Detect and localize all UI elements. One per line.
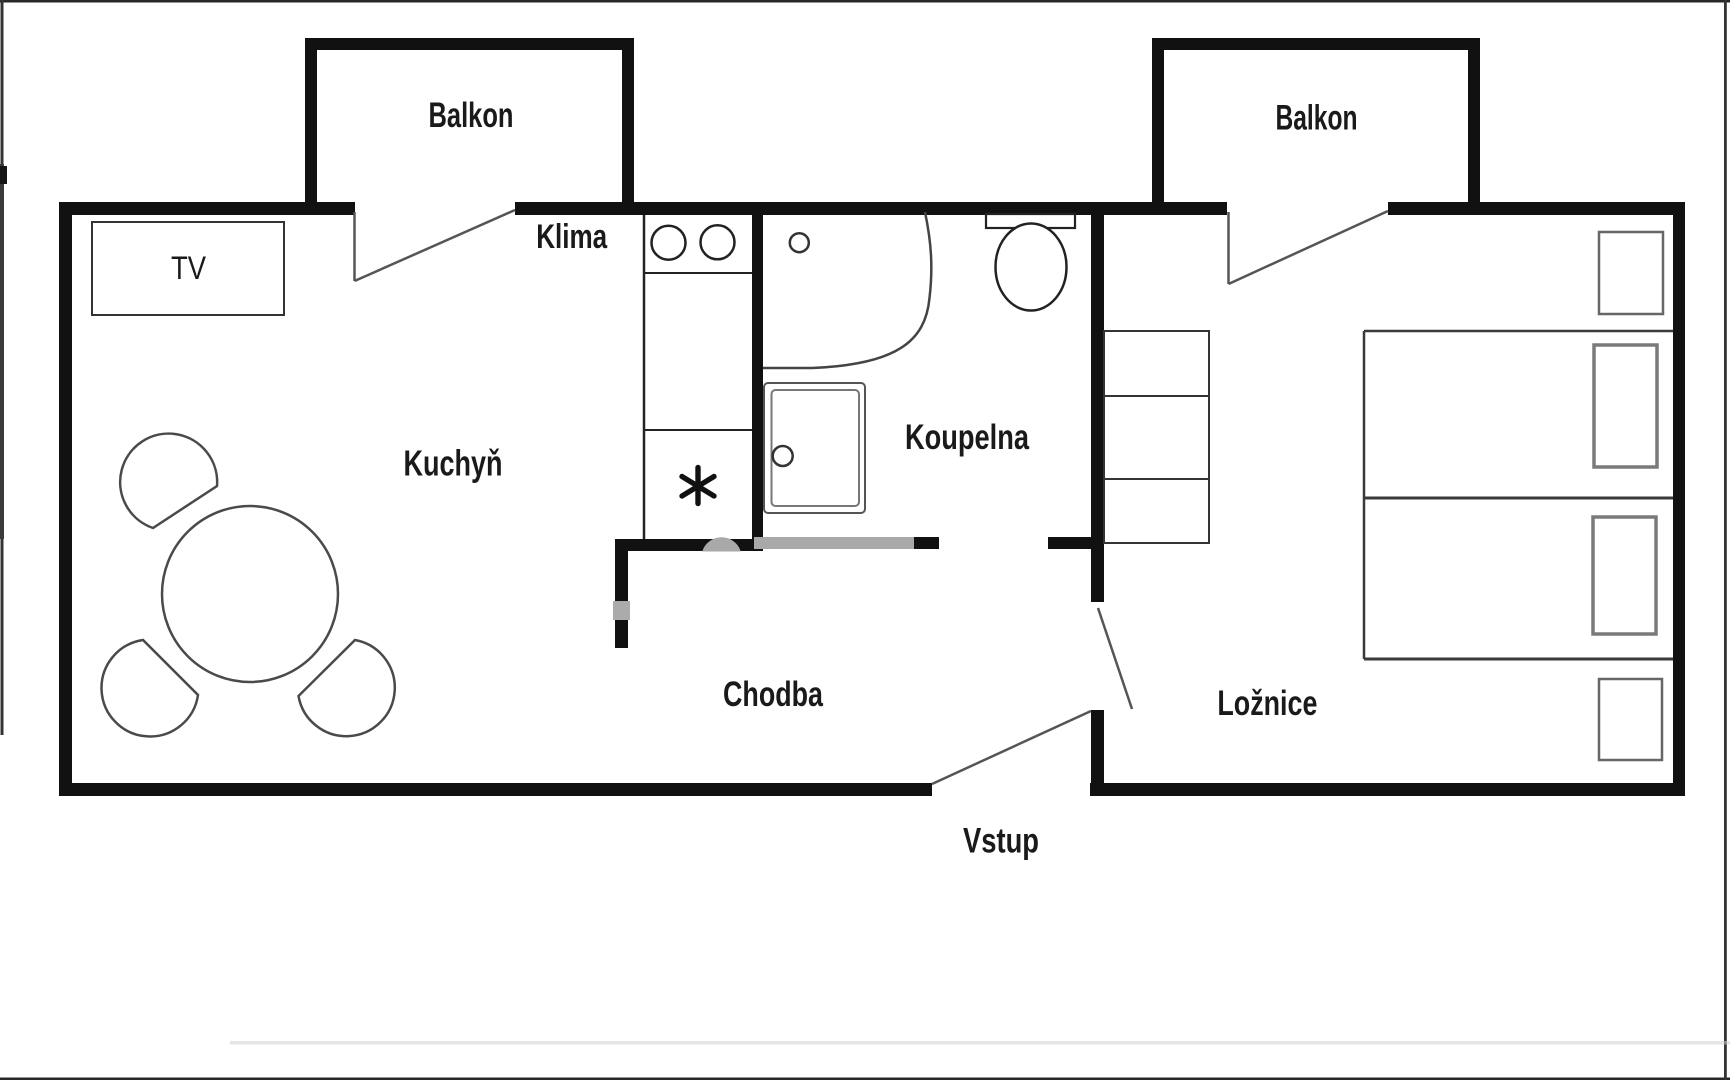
svg-text:Balkon: Balkon: [1276, 99, 1358, 138]
svg-text:Chodba: Chodba: [723, 675, 823, 714]
svg-text:TV: TV: [171, 250, 207, 286]
svg-text:Ložnice: Ložnice: [1217, 684, 1317, 723]
svg-text:Klima: Klima: [536, 218, 608, 256]
svg-text:Kuchyň: Kuchyň: [404, 443, 503, 484]
svg-text:Vstup: Vstup: [963, 822, 1039, 861]
svg-text:Koupelna: Koupelna: [905, 418, 1029, 457]
svg-text:Balkon: Balkon: [429, 96, 514, 135]
